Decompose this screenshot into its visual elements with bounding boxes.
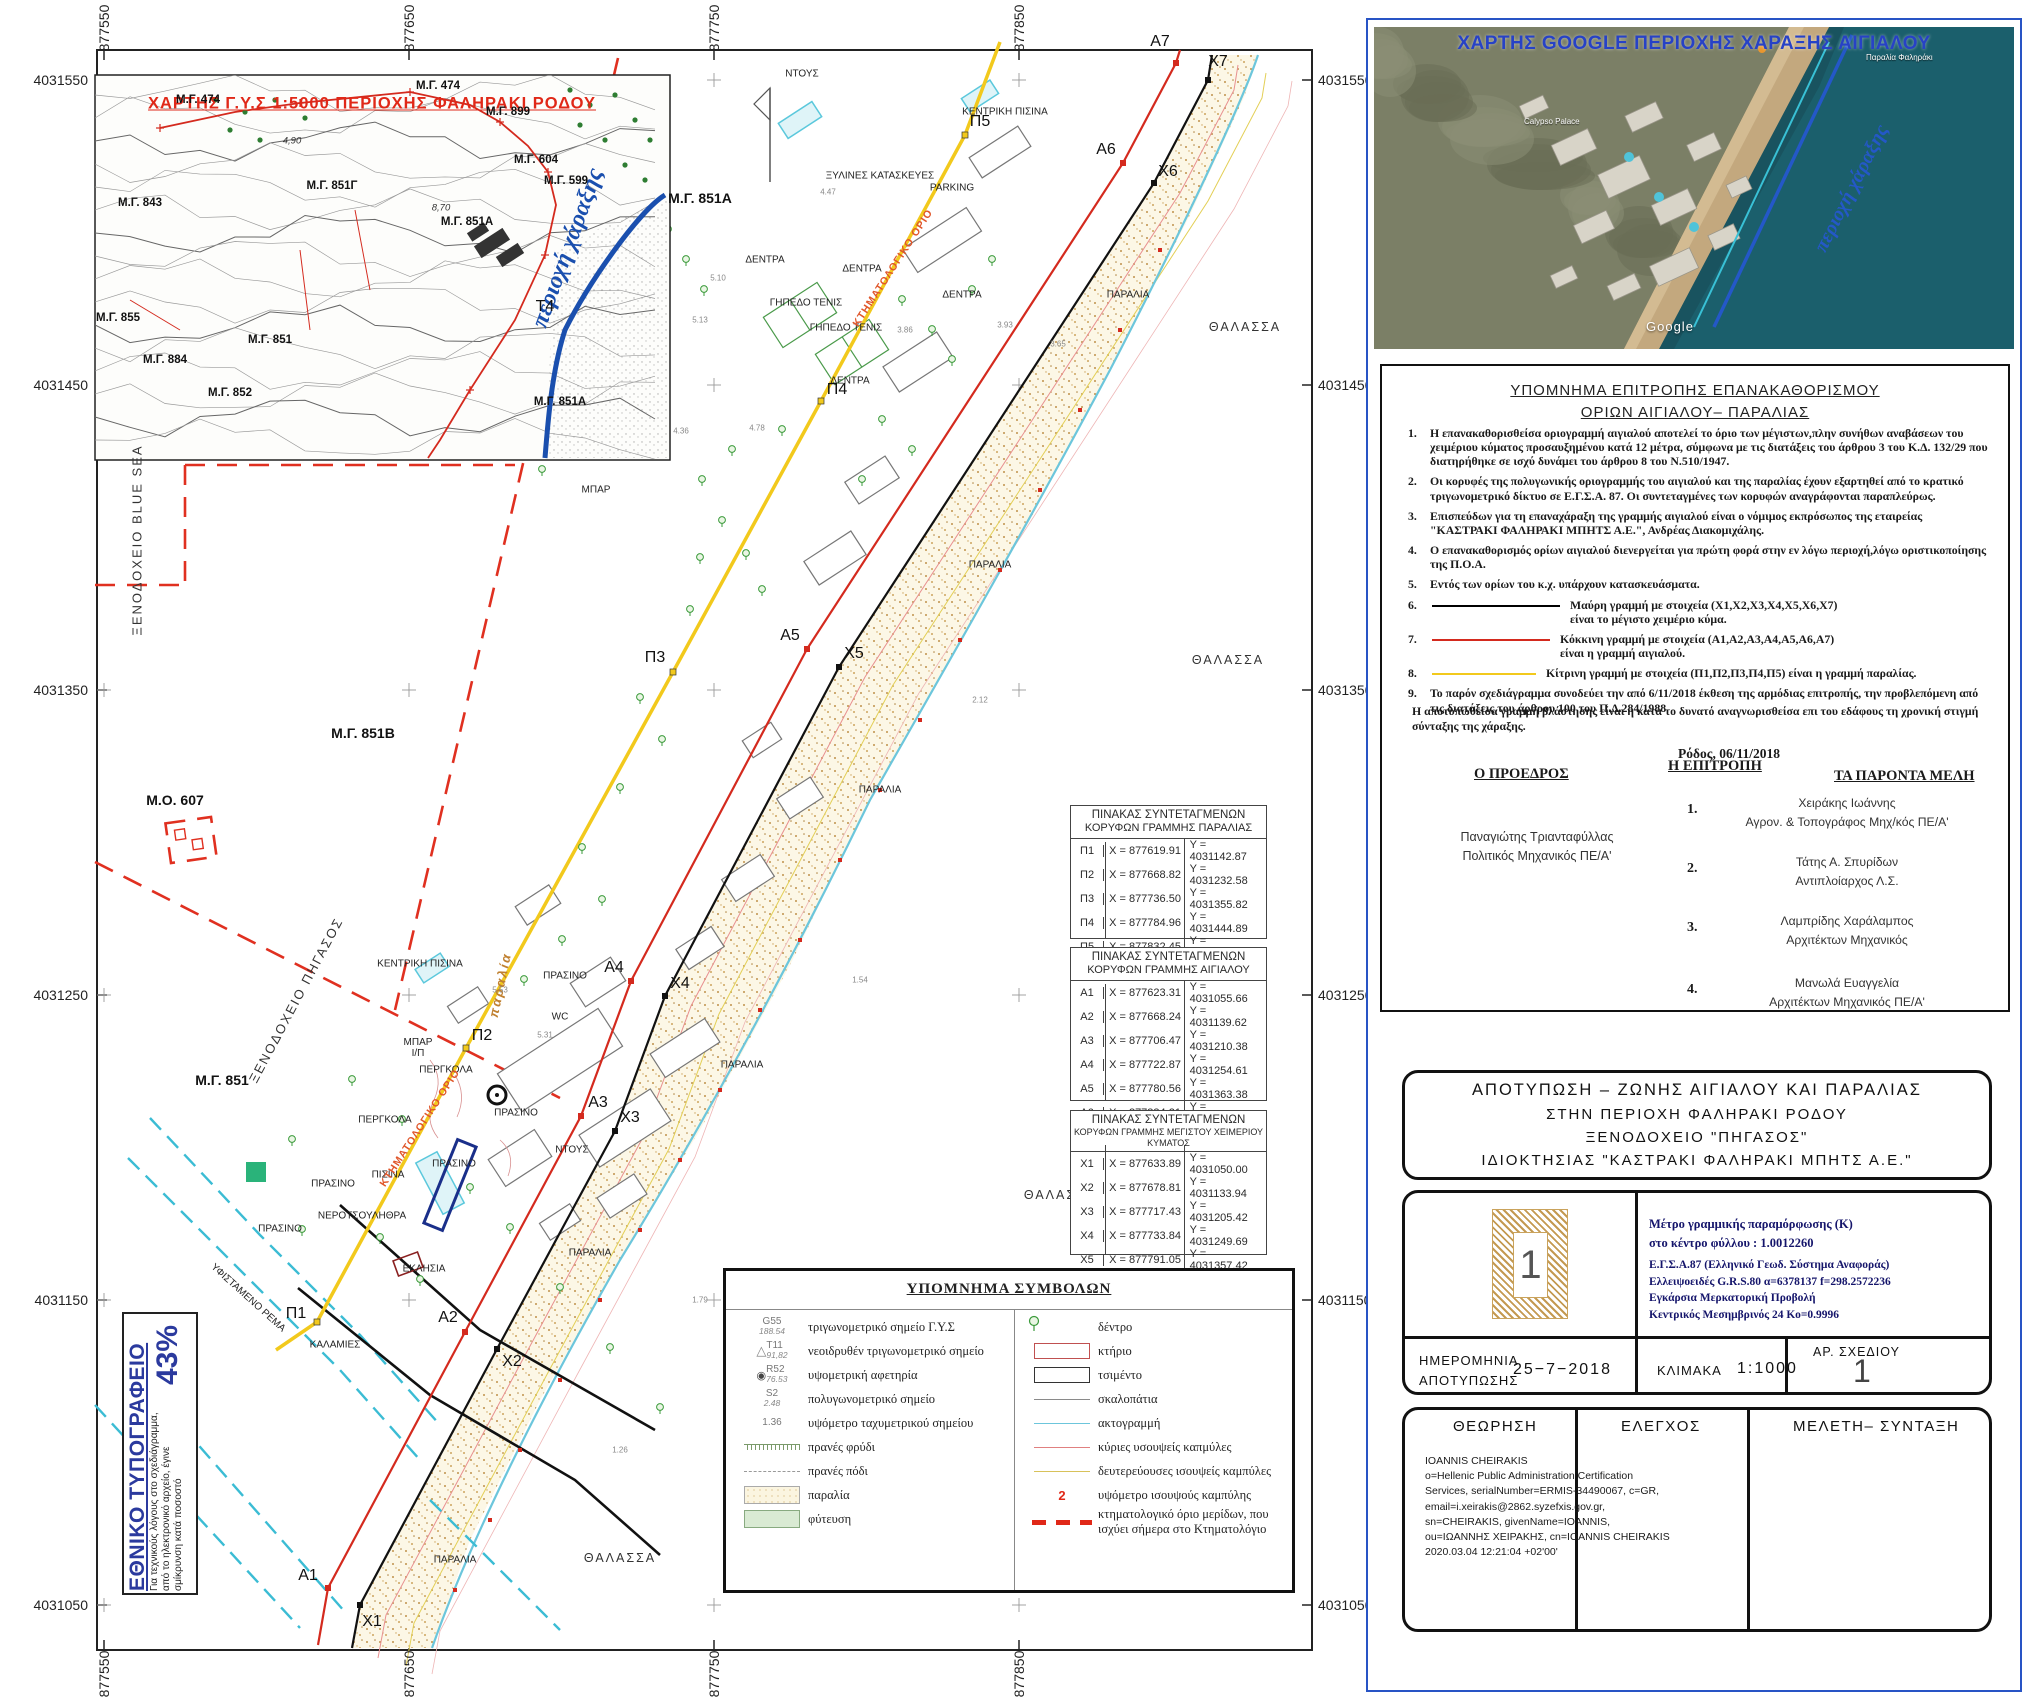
col-divider <box>1184 842 1185 938</box>
signature-line: sn=CHEIRAKIS, givenName=IOANNIS, <box>1425 1515 1755 1530</box>
y-coordinate: Y = 4031205.42 <box>1184 1200 1266 1224</box>
sheet-stamp-number: 1 <box>1513 1232 1548 1298</box>
note-number: 3. <box>1408 509 1430 537</box>
table-row: Χ3X = 877717.43Y = 4031205.42 <box>1071 1200 1266 1224</box>
x-coordinate: X = 877733.84 <box>1103 1230 1184 1242</box>
project-line-4: ΙΔΙΟΚΤΗΣΙΑΣ "ΚΑΣΤΡΑΚΙ ΦΑΛΗΡΑΚΙ ΜΠΗΤΣ Α.Ε… <box>1405 1152 1989 1169</box>
drawing-sheet: 8775508775508776508776508777508777508778… <box>0 0 2036 1699</box>
trig-symbol: △T1191,82 <box>736 1341 808 1360</box>
printing-office-note: Για τεχνικούς λόγους στο σχεδιάγραμμα, α… <box>149 1391 184 1591</box>
table-title-1: ΠΙΝΑΚΑΣ ΣΥΝΤΕΤΑΓΜΕΝΩΝ <box>1073 1114 1264 1127</box>
grid-x-label: 877850 <box>1011 5 1027 52</box>
note-number: 7. <box>1408 632 1430 660</box>
note-item: 5.Εντός των ορίων του κ.χ. υπάρχουν κατα… <box>1408 577 1992 591</box>
note-text: Οι κορυφές της πολυγωνικής οριογραμμής τ… <box>1430 474 1992 502</box>
cement-symbol <box>1026 1367 1098 1383</box>
member-identity: Χειράκης ΙωάννηςΑγρον. & Τοπογράφος Μηχ/… <box>1717 794 1977 832</box>
legend-divider <box>726 1309 1292 1310</box>
coast-symbol <box>1026 1423 1098 1424</box>
legend-row: δέντρο <box>1026 1315 1288 1339</box>
member-number: 4. <box>1687 974 1717 1012</box>
legend-row: παραλία <box>736 1483 1006 1507</box>
note-number: 6. <box>1408 598 1430 626</box>
signature-line: o=Hellenic Public Administration Certifi… <box>1425 1469 1755 1484</box>
x-coordinate: X = 877791.05 <box>1103 1254 1184 1266</box>
point-id: Π3 <box>1071 893 1103 905</box>
legend-label: νεοιδρυθέν τριγωνομετρικό σημείο <box>808 1344 984 1359</box>
point-id: Α1 <box>1071 987 1103 999</box>
legend-label: πρανές φρύδι <box>808 1440 875 1455</box>
point-id: Χ3 <box>1071 1206 1103 1218</box>
grid-x-label: 877650 <box>401 1651 417 1698</box>
committee-label: Η ΕΠΙΤΡΟΠΗ <box>1668 758 1762 775</box>
signature-line: Services, serialNumber=ERMIS-34490067, c… <box>1425 1484 1755 1499</box>
table-title-2: ΚΟΡΥΦΩΝ ΓΡΑΜΜΗΣ ΑΙΓΙΑΛΟΥ <box>1073 964 1264 977</box>
legend-row: △T1191,82νεοιδρυθέν τριγωνομετρικό σημεί… <box>736 1339 1006 1363</box>
cadastral-symbol <box>1026 1520 1098 1525</box>
legend-row: σκαλοπάτια <box>1026 1387 1288 1411</box>
col-divider <box>1184 984 1185 1100</box>
grid-y-label: 4031050 <box>18 1597 88 1613</box>
inset-map <box>95 75 670 460</box>
legend-label: υψομετρική αφετηρία <box>808 1368 918 1383</box>
study-label: ΜΕΛΕΤΗ– ΣΥΝΤΑΞΗ <box>1793 1418 1959 1435</box>
x-coordinate: X = 877784.96 <box>1103 917 1184 929</box>
point-id: Α3 <box>1071 1035 1103 1047</box>
member-number: 3. <box>1687 912 1717 950</box>
sheet-stamp: 1 <box>1492 1209 1568 1319</box>
grid-y-label: 4031050 <box>1318 1597 1373 1613</box>
x-coordinate: X = 877623.31 <box>1103 987 1184 999</box>
grid-x-label: 877750 <box>706 1651 722 1698</box>
check-label: ΕΛΕΓΧΟΣ <box>1621 1418 1701 1435</box>
grid-y-label: 4031150 <box>18 1292 88 1308</box>
survey-date: 25−7−2018 <box>1513 1361 1612 1379</box>
legend-row: κτήριο <box>1026 1339 1288 1363</box>
member-title: Αρχιτέκτων Μηχανικός ΠΕ/Α' <box>1717 993 1977 1012</box>
table-row: Α4X = 877722.87Y = 4031254.61 <box>1071 1053 1266 1077</box>
y-coordinate: Y = 4031444.89 <box>1184 911 1266 935</box>
grid-y-label: 4031350 <box>18 682 88 698</box>
red-line-sample <box>1432 639 1550 641</box>
legend-label: παραλία <box>808 1488 850 1503</box>
table-header: ΠΙΝΑΚΑΣ ΣΥΝΤΕΤΑΓΜΕΝΩΝΚΟΡΥΦΩΝ ΓΡΑΜΜΗΣ ΜΕΓ… <box>1071 1111 1266 1152</box>
member-name: Τάτης Α. Σπυρίδων <box>1717 853 1977 872</box>
datum-line: Κεντρικός Μεσημβρινός 24 Κο=0.9996 <box>1649 1307 1891 1324</box>
committee-notes-panel: ΥΠΟΜΝΗΜΑ ΕΠΙΤΡΟΠΗΣ ΕΠΑΝΑΚΑΘΟΡΙΣΜΟΥ ΟΡΙΩΝ… <box>1380 364 2010 1012</box>
satellite-poi-beach: Παραλία Φαληράκι <box>1866 53 1933 62</box>
scale-label: ΚΛΙΜΑΚΑ <box>1657 1361 1722 1381</box>
y-coordinate: Y = 4031139.62 <box>1184 1005 1266 1029</box>
point-id: Χ4 <box>1071 1230 1103 1242</box>
x-coordinate: X = 877678.81 <box>1103 1182 1184 1194</box>
satellite-poi-hotel: Calypso Palace <box>1524 117 1580 126</box>
note-item: 8.Κίτρινη γραμμή με στοιχεία (Π1,Π2,Π3,Π… <box>1408 666 1992 680</box>
y-coordinate: Y = 4031133.94 <box>1184 1176 1266 1200</box>
signatures-box: ΘΕΩΡΗΣΗ ΕΛΕΓΧΟΣ ΜΕΛΕΤΗ– ΣΥΝΤΑΞΗ IOANNIS … <box>1402 1407 1992 1632</box>
x-coordinate: X = 877619.91 <box>1103 845 1184 857</box>
point-id: Π2 <box>1071 869 1103 881</box>
table-row: Χ4X = 877733.84Y = 4031249.69 <box>1071 1224 1266 1248</box>
project-line-1: ΑΠΟΤΥΠΩΣΗ – ΖΩΝΗΣ ΑΙΓΙΑΛΟΥ ΚΑΙ ΠΑΡΑΛΙΑΣ <box>1405 1081 1989 1100</box>
note-number: 5. <box>1408 577 1430 591</box>
note-item: 6.Μαύρη γραμμή με στοιχεία (Χ1,Χ2,Χ3,Χ4,… <box>1408 598 1992 626</box>
legend-label: πολυγωνομετρικό σημείο <box>808 1392 935 1407</box>
note-text: Εντός των ορίων του κ.χ. υπάρχουν κατασκ… <box>1430 577 1992 591</box>
member-number: 2. <box>1687 853 1717 891</box>
note-number: 8. <box>1408 666 1430 680</box>
member-number: 1. <box>1687 794 1717 832</box>
point-id: Α2 <box>1071 1011 1103 1023</box>
table-title-1: ΠΙΝΑΚΑΣ ΣΥΝΤΕΤΑΓΜΕΝΩΝ <box>1073 809 1264 822</box>
legend-row: πρανές φρύδι <box>736 1435 1006 1459</box>
distortion-factor: Μέτρο γραμμικής παραμόρφωσης (Κ) στο κέν… <box>1649 1215 1853 1253</box>
member-identity: Λαμπρίδης ΧαράλαμποςΑρχιτέκτων Μηχανικός <box>1717 912 1977 950</box>
member-name: Μανωλά Ευαγγελία <box>1717 974 1977 993</box>
point-id: Π4 <box>1071 917 1103 929</box>
project-line-2: ΣΤΗΝ ΠΕΡΙΟΧΗ ΦΑΛΗΡΑΚΙ ΡΟΔΟΥ <box>1405 1106 1989 1123</box>
right-sheet: ΧΑΡΤΗΣ GOOGLE ΠΕΡΙΟΧΗΣ ΧΑΡΑΞΗΣ ΑΙΓΙΑΛΟΥ … <box>1366 18 2022 1692</box>
project-line-3: ΞΕΝΟΔΟΧΕΙΟ "ΠΗΓΑΣΟΣ" <box>1405 1129 1989 1146</box>
tennis-courts <box>763 282 888 384</box>
mo607-buildings <box>174 829 203 850</box>
table-row: Α3X = 877706.47Y = 4031210.38 <box>1071 1029 1266 1053</box>
table-row: Χ2X = 877678.81Y = 4031133.94 <box>1071 1176 1266 1200</box>
committee-member: 4.Μανωλά ΕυαγγελίαΑρχιτέκτων Μηχανικός Π… <box>1687 974 1977 1012</box>
point-id: Χ2 <box>1071 1182 1103 1194</box>
survey-date-label: ΗΜΕΡΟΜΗΝΙΑ ΑΠΟΤΥΠΩΣΗΣ <box>1419 1351 1519 1390</box>
datum-line: Ελλειψοειδές G.R.S.80 α=6378137 f=298.25… <box>1649 1274 1891 1291</box>
legend-label: σκαλοπάτια <box>1098 1392 1158 1407</box>
grid-y-label: 4031550 <box>18 72 88 88</box>
north-arrow <box>754 88 770 182</box>
legend-label: κτήριο <box>1098 1344 1132 1359</box>
legend-row: G55188.54τριγωνομετρικό σημείο Γ.Υ.Σ <box>736 1315 1006 1339</box>
note-item: 1.Η επανακαθορισθείσα οριογραμμή αιγιαλο… <box>1408 426 1992 468</box>
well-symbol <box>488 1086 506 1104</box>
symbols-legend: ΥΠΟΜΝΗΜΑ ΣΥΜΒΟΛΩΝ G55188.54τριγωνομετρικ… <box>723 1268 1295 1593</box>
grid-x-label: 877750 <box>706 5 722 52</box>
table-row: Π4X = 877784.96Y = 4031444.89 <box>1071 911 1266 935</box>
datum-line: Ε.Γ.Σ.Α.87 (Ελληνικό Γεωδ. Σύστημα Αναφο… <box>1649 1257 1891 1274</box>
table-row: Π1X = 877619.91Y = 4031142.87 <box>1071 839 1266 863</box>
legend-label: δευτερεύουσες ισουψείς καμπύλες <box>1098 1464 1271 1479</box>
legend-row: φύτευση <box>736 1507 1006 1531</box>
note-text: Ο επανακαθορισμός ορίων αιγιαλού διενεργ… <box>1430 543 1992 571</box>
legend-column-divider <box>1014 1309 1015 1590</box>
building-symbol <box>1026 1343 1098 1359</box>
table-title-2: ΚΟΡΥΦΩΝ ΓΡΑΜΜΗΣ ΠΑΡΑΛΙΑΣ <box>1073 822 1264 835</box>
legend-row: 2υψόμετρο ισουψούς καμπύλης <box>1026 1483 1288 1507</box>
legend-label: τσιμέντο <box>1098 1368 1142 1383</box>
legend-left-column: G55188.54τριγωνομετρικό σημείο Γ.Υ.Σ△T11… <box>736 1315 1006 1584</box>
legend-row: πρανές πόδι <box>736 1459 1006 1483</box>
y-coordinate: Y = 4031142.87 <box>1184 839 1266 863</box>
legend-row: τσιμέντο <box>1026 1363 1288 1387</box>
slope-foot-symbol <box>736 1471 808 1472</box>
legend-row: κύριες υσουψείς καπμύλες <box>1026 1435 1288 1459</box>
x-coordinate: X = 877668.24 <box>1103 1011 1184 1023</box>
notes-title: ΥΠΟΜΝΗΜΑ ΕΠΙΤΡΟΠΗΣ ΕΠΑΝΑΚΑΘΟΡΙΣΜΟΥ ΟΡΙΩΝ… <box>1382 380 2008 424</box>
member-title: Αντιπλοίαρχος Λ.Σ. <box>1717 872 1977 891</box>
google-watermark: Google <box>1646 319 1694 334</box>
y-coordinate: Y = 4031355.82 <box>1184 887 1266 911</box>
note-number: 4. <box>1408 543 1430 571</box>
x-coordinate: X = 877780.56 <box>1103 1083 1184 1095</box>
approval-label: ΘΕΩΡΗΣΗ <box>1453 1418 1537 1435</box>
legend-row: ◉R5276.53υψομετρική αφετηρία <box>736 1363 1006 1387</box>
coordinate-table: ΠΙΝΑΚΑΣ ΣΥΝΤΕΤΑΓΜΕΝΩΝΚΟΡΥΦΩΝ ΓΡΑΜΜΗΣ ΑΙΓ… <box>1070 947 1267 1101</box>
signature-line: email=i.xeirakis@2862.syzefxis.gov.gr, <box>1425 1500 1755 1515</box>
note-text: Κίτρινη γραμμή με στοιχεία (Π1,Π2,Π3,Π4,… <box>1546 666 1992 680</box>
col-divider <box>1105 842 1106 938</box>
note-item: 2.Οι κορυφές της πολυγωνικής οριογραμμής… <box>1408 474 1992 502</box>
note-item: 7.Κόκκινη γραμμή με στοιχεία (Α1,Α2,Α3,Α… <box>1408 632 1992 660</box>
x-coordinate: X = 877633.89 <box>1103 1158 1184 1170</box>
x-coordinate: X = 877736.50 <box>1103 893 1184 905</box>
reduction-percent: 43% <box>151 1325 185 1385</box>
table-body: Χ1X = 877633.89Y = 4031050.00Χ2X = 87767… <box>1071 1152 1266 1261</box>
member-title: Αγρον. & Τοπογράφος Μηχ/κός ΠΕ/Α' <box>1717 813 1977 832</box>
legend-row: S22.48πολυγωνομετρικό σημείο <box>736 1387 1006 1411</box>
beach-symbol <box>736 1486 808 1504</box>
col-divider <box>1105 1145 1106 1254</box>
legend-label: τριγωνομετρικό σημείο Γ.Υ.Σ <box>808 1320 955 1335</box>
signature-line: 2020.03.04 12:21:04 +02'00' <box>1425 1545 1755 1560</box>
spot-symbol: 1.36 <box>736 1418 808 1428</box>
legend-label: φύτευση <box>808 1512 851 1527</box>
legend-label: υψόμετρο ταχυμετρικού σημείου <box>808 1416 973 1431</box>
grid-y-label: 4031250 <box>18 987 88 1003</box>
table-row: Α2X = 877668.24Y = 4031139.62 <box>1071 1005 1266 1029</box>
gys-symbol: G55188.54 <box>736 1317 808 1336</box>
printing-office-title: ΕΘΝΙΚΟ ΤΥΠΟΓΡΑΦΕΙΟ <box>127 1320 149 1591</box>
legend-row: κτηματολογικό όριο μερίδων, που ισχύει σ… <box>1026 1507 1288 1537</box>
sec-contour-symbol <box>1026 1471 1098 1472</box>
y-coordinate: Y = 4031055.66 <box>1184 981 1266 1005</box>
committee-member: 2.Τάτης Α. ΣπυρίδωνΑντιπλοίαρχος Λ.Σ. <box>1687 853 1977 891</box>
table-header: ΠΙΝΑΚΑΣ ΣΥΝΤΕΤΑΓΜΕΝΩΝΚΟΡΥΦΩΝ ΓΡΑΜΜΗΣ ΑΙΓ… <box>1071 948 1266 981</box>
y-coordinate: Y = 4031232.58 <box>1184 863 1266 887</box>
poly-symbol: S22.48 <box>736 1389 808 1408</box>
table-body: Α1X = 877623.31Y = 4031055.66Α2X = 87766… <box>1071 981 1266 1097</box>
legend-label: κύριες υσουψείς καπμύλες <box>1098 1440 1232 1455</box>
table-body: Π1X = 877619.91Y = 4031142.87Π2X = 87766… <box>1071 839 1266 935</box>
committee-member: 3.Λαμπρίδης ΧαράλαμποςΑρχιτέκτων Μηχανικ… <box>1687 912 1977 950</box>
legend-title: ΥΠΟΜΝΗΜΑ ΣΥΜΒΟΛΩΝ <box>726 1281 1292 1298</box>
y-coordinate: Y = 4031363.38 <box>1184 1077 1266 1101</box>
y-coordinate: Y = 4031249.69 <box>1184 1224 1266 1248</box>
green-square <box>246 1162 266 1182</box>
scale-value: 1:1000 <box>1737 1360 1798 1378</box>
notes-list: 1.Η επανακαθορισθείσα οριογραμμή αιγιαλο… <box>1408 426 1992 721</box>
legend-label: κτηματολογικό όριο μερίδων, που ισχύει σ… <box>1098 1507 1269 1537</box>
point-id: Α4 <box>1071 1059 1103 1071</box>
x-coordinate: X = 877717.43 <box>1103 1206 1184 1218</box>
grid-y-label: 4031550 <box>1318 72 1373 88</box>
point-id: Α5 <box>1071 1083 1103 1095</box>
y-coordinate: Y = 4031210.38 <box>1184 1029 1266 1053</box>
note-number: 1. <box>1408 426 1430 468</box>
legend-row: ακτογραμμή <box>1026 1411 1288 1435</box>
note-text: Επισπεύδων για τη επαναχάραξη της γραμμή… <box>1430 509 1992 537</box>
x-coordinate: X = 877722.87 <box>1103 1059 1184 1071</box>
grid-x-label: 877550 <box>96 5 112 52</box>
signature-line: IOANNIS CHEIRAKIS <box>1425 1454 1755 1469</box>
x-coordinate: X = 877706.47 <box>1103 1035 1184 1047</box>
member-name: Λαμπρίδης Χαράλαμπος <box>1717 912 1977 931</box>
note-text: Μαύρη γραμμή με στοιχεία (Χ1,Χ2,Χ3,Χ4,Χ5… <box>1570 598 1992 626</box>
bench-symbol: ◉R5276.53 <box>736 1365 808 1384</box>
table-row: Χ1X = 877633.89Y = 4031050.00 <box>1071 1152 1266 1176</box>
legend-label: πρανές πόδι <box>808 1464 868 1479</box>
satellite-image: ΧΑΡΤΗΣ GOOGLE ΠΕΡΙΟΧΗΣ ΧΑΡΑΞΗΣ ΑΙΓΙΑΛΟΥ … <box>1374 27 2014 349</box>
coordinate-table: ΠΙΝΑΚΑΣ ΣΥΝΤΕΤΑΓΜΕΝΩΝΚΟΡΥΦΩΝ ΓΡΑΜΜΗΣ ΜΕΓ… <box>1070 1110 1267 1255</box>
members-label: ΤΑ ΠΑΡΟΝΤΑ ΜΕΛΗ <box>1834 768 1975 785</box>
geodetic-datum: Ε.Γ.Σ.Α.87 (Ελληνικό Γεωδ. Σύστημα Αναφο… <box>1649 1257 1891 1324</box>
datum-box: 1 Μέτρο γραμμικής παραμόρφωσης (Κ) στο κ… <box>1402 1190 1992 1395</box>
x-coordinate: X = 877668.82 <box>1103 869 1184 881</box>
closing-note: Η αποτυπωθείσα γραμμή βλάστησης είναι η … <box>1412 704 1988 733</box>
note-number: 2. <box>1408 474 1430 502</box>
grid-y-label: 4031450 <box>1318 377 1373 393</box>
datum-line: Εγκάρσια Μερκατορική Προβολή <box>1649 1290 1891 1307</box>
table-row: Π2X = 877668.82Y = 4031232.58 <box>1071 863 1266 887</box>
legend-label: ακτογραμμή <box>1098 1416 1160 1431</box>
grid-x-label: 877650 <box>401 5 417 52</box>
coordinate-table: ΠΙΝΑΚΑΣ ΣΥΝΤΕΤΑΓΜΕΝΩΝΚΟΡΥΦΩΝ ΓΡΑΜΜΗΣ ΠΑΡ… <box>1070 805 1267 939</box>
printing-office-stamp: ΕΘΝΙΚΟ ΤΥΠΟΓΡΑΦΕΙΟ Για τεχνικούς λόγους … <box>122 1312 198 1595</box>
table-row: Α5X = 877780.56Y = 4031363.38 <box>1071 1077 1266 1101</box>
table-row: Α1X = 877623.31Y = 4031055.66 <box>1071 981 1266 1005</box>
y-coordinate: Y = 4031050.00 <box>1184 1152 1266 1176</box>
legend-right-column: δέντροκτήριοτσιμέντοσκαλοπάτιαακτογραμμή… <box>1026 1315 1288 1584</box>
member-name: Χειράκης Ιωάννης <box>1717 794 1977 813</box>
contour-elev-symbol: 2 <box>1026 1488 1098 1503</box>
legend-label: δέντρο <box>1098 1320 1132 1335</box>
president-signature: Παναγιώτης Τριανταφύλλας Πολιτικός Μηχαν… <box>1422 828 1652 866</box>
point-id: Χ5 <box>1071 1254 1103 1266</box>
title-block: ΑΠΟΤΥΠΩΣΗ – ΖΩΝΗΣ ΑΙΓΙΑΛΟΥ ΚΑΙ ΠΑΡΑΛΙΑΣ … <box>1380 1022 2012 1694</box>
grid-y-label: 4031450 <box>18 377 88 393</box>
grid-x-label: 877550 <box>96 1651 112 1698</box>
yellow-line-sample <box>1432 673 1536 675</box>
plant-symbol <box>736 1510 808 1528</box>
member-identity: Μανωλά ΕυαγγελίαΑρχιτέκτων Μηχανικός ΠΕ/… <box>1717 974 1977 1012</box>
main-contour-symbol <box>1026 1447 1098 1448</box>
digital-signature: IOANNIS CHEIRAKISo=Hellenic Public Admin… <box>1425 1454 1755 1561</box>
note-text: Η επανακαθορισθείσα οριογραμμή αιγιαλού … <box>1430 426 1992 468</box>
president-label: Ο ΠΡΟΕΔΡΟΣ <box>1474 766 1569 783</box>
steps-symbol <box>1026 1399 1098 1400</box>
grid-y-label: 4031150 <box>1318 1292 1371 1308</box>
slope-top-symbol <box>736 1444 808 1450</box>
signature-line: ou=ΙΩΑΝΝΗΣ ΧΕΙΡΑΚΗΣ, cn=IOANNIS CHEIRAKI… <box>1425 1530 1755 1545</box>
project-title-box: ΑΠΟΤΥΠΩΣΗ – ΖΩΝΗΣ ΑΙΓΙΑΛΟΥ ΚΑΙ ΠΑΡΑΛΙΑΣ … <box>1402 1070 1992 1180</box>
sheet-number: 1 <box>1853 1353 1871 1390</box>
table-row: Π3X = 877736.50Y = 4031355.82 <box>1071 887 1266 911</box>
grid-y-label: 4031350 <box>1318 682 1373 698</box>
grid-y-label: 4031250 <box>1318 987 1373 1003</box>
note-item: 4.Ο επανακαθορισμός ορίων αιγιαλού διενε… <box>1408 543 1992 571</box>
black-line-sample <box>1432 605 1560 607</box>
col-divider <box>1184 1145 1185 1254</box>
table-title-2: ΚΟΡΥΦΩΝ ΓΡΑΜΜΗΣ ΜΕΓΙΣΤΟΥ ΧΕΙΜΕΡΙΟΥ ΚΥΜΑΤ… <box>1073 1127 1264 1148</box>
note-text: Κόκκινη γραμμή με στοιχεία (Α1,Α2,Α3,Α4,… <box>1560 632 1992 660</box>
grid-x-label: 877850 <box>1011 1651 1027 1698</box>
member-title: Αρχιτέκτων Μηχανικός <box>1717 931 1977 950</box>
committee-member: 1.Χειράκης ΙωάννηςΑγρον. & Τοπογράφος Μη… <box>1687 794 1977 832</box>
table-title-1: ΠΙΝΑΚΑΣ ΣΥΝΤΕΤΑΓΜΕΝΩΝ <box>1073 951 1264 964</box>
note-item: 3.Επισπεύδων για τη επαναχάραξη της γραμ… <box>1408 509 1992 537</box>
col-divider <box>1105 984 1106 1100</box>
y-coordinate: Y = 4031254.61 <box>1184 1053 1266 1077</box>
legend-row: δευτερεύουσες ισουψείς καμπύλες <box>1026 1459 1288 1483</box>
point-id: Π1 <box>1071 845 1103 857</box>
satellite-title: ΧΑΡΤΗΣ GOOGLE ΠΕΡΙΟΧΗΣ ΧΑΡΑΞΗΣ ΑΙΓΙΑΛΟΥ <box>1374 33 2014 55</box>
table-header: ΠΙΝΑΚΑΣ ΣΥΝΤΕΤΑΓΜΕΝΩΝΚΟΡΥΦΩΝ ΓΡΑΜΜΗΣ ΠΑΡ… <box>1071 806 1266 839</box>
point-id: Χ1 <box>1071 1158 1103 1170</box>
legend-label: υψόμετρο ισουψούς καμπύλης <box>1098 1488 1251 1503</box>
legend-row: 1.36υψόμετρο ταχυμετρικού σημείου <box>736 1411 1006 1435</box>
member-identity: Τάτης Α. ΣπυρίδωνΑντιπλοίαρχος Λ.Σ. <box>1717 853 1977 891</box>
